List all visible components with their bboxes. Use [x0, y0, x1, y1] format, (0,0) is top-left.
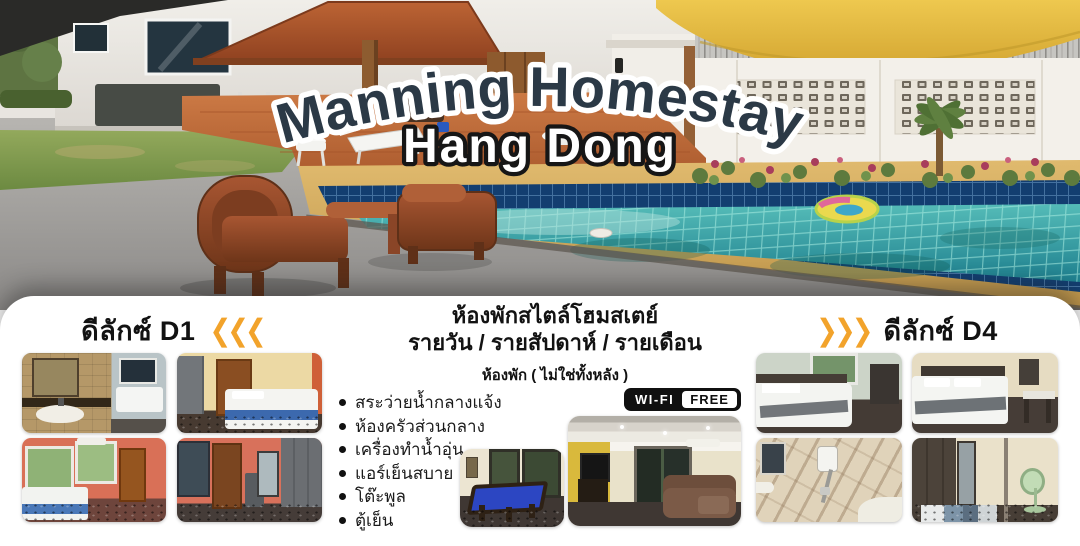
shower-hose — [821, 469, 833, 502]
photo-d4-bedroom-1 — [756, 353, 902, 433]
free-label: FREE — [682, 391, 737, 408]
photo-d4-bedroom-2 — [912, 353, 1058, 433]
desk — [1023, 391, 1055, 398]
pillow — [762, 384, 800, 393]
wifi-free-badge: WI-FI FREE — [624, 388, 741, 411]
vanity — [1019, 359, 1039, 385]
wardrobe — [281, 438, 322, 507]
hero-photo-canvas: Manning Homestay Hang Dong — [0, 0, 1080, 310]
television — [580, 453, 610, 481]
photo-d1-bedroom-yellow — [177, 353, 322, 433]
window — [119, 358, 158, 384]
chevrons-left-icon: ❮❮❮ — [209, 313, 262, 349]
pool-float — [816, 196, 878, 222]
pillow — [924, 378, 950, 387]
amenity-item: ห้องครัวส่วนกลาง — [338, 415, 568, 439]
ceiling-light — [620, 425, 624, 429]
info-panel: ดีลักซ์ D1 ❮❮❮ ❯❯❯ ดีลักซ์ D4 ห้องพักสไต… — [0, 296, 1080, 546]
floor — [111, 419, 166, 433]
sofa-cushion — [698, 496, 729, 514]
sink — [36, 405, 84, 423]
photo-d1-room-wardrobe — [177, 438, 322, 522]
bathtub — [858, 497, 902, 522]
mirror — [257, 451, 278, 497]
headboard — [756, 374, 847, 384]
vanity — [870, 364, 899, 404]
bed — [116, 387, 164, 413]
section-d1-title: ดีลักซ์ D1 — [81, 309, 195, 352]
water-heater — [817, 446, 838, 472]
amenity-item: สระว่ายน้ำกลางแจ้ง — [338, 391, 568, 415]
desk-leg — [1046, 399, 1050, 423]
hero-photo: Manning Homestay Hang Dong — [0, 0, 1080, 310]
pool-drain-cover — [590, 229, 612, 238]
door — [212, 443, 242, 509]
wifi-label: WI-FI — [635, 392, 674, 407]
shower-head — [820, 487, 830, 495]
door — [119, 448, 146, 502]
mirror — [957, 441, 976, 505]
section-d1-header: ดีลักซ์ D1 ❮❮❮ — [12, 309, 332, 352]
mirror — [32, 358, 79, 397]
heading-line1: ห้องพักสไตล์โฮมสเตย์ — [330, 302, 780, 329]
section-d4-header: ❯❯❯ ดีลักซ์ D4 — [747, 309, 1067, 352]
fan-head — [1020, 468, 1045, 495]
wardrobe — [912, 438, 956, 509]
sink — [756, 482, 774, 493]
photo-pool-table-room — [460, 449, 564, 527]
vent-blocks — [895, 80, 1035, 134]
window — [177, 441, 210, 497]
desk-leg — [1024, 399, 1028, 423]
subheading: ห้องพัก ( ไม่ใช่ทั้งหลัง ) — [330, 363, 780, 387]
photo-living-room — [568, 416, 741, 526]
air-conditioner — [686, 439, 721, 447]
floor — [460, 508, 564, 527]
sub-title: Hang Dong — [403, 120, 677, 173]
window — [760, 442, 786, 475]
center-heading: ห้องพักสไตล์โฮมสเตย์ รายวัน / รายสัปดาห์… — [330, 302, 780, 387]
faucet — [58, 398, 64, 406]
photo-d4-room-fan — [912, 438, 1058, 522]
floor — [177, 502, 322, 522]
floor — [177, 414, 322, 433]
chevrons-right-icon: ❯❯❯ — [816, 313, 869, 349]
wall-picture — [466, 457, 477, 478]
photo-d1-bathroom — [22, 353, 166, 433]
window — [25, 446, 74, 492]
wardrobe — [177, 356, 204, 414]
wicker-chair-seat — [222, 216, 348, 262]
pillow — [954, 378, 980, 387]
air-conditioner — [77, 438, 106, 445]
section-d4-title: ดีลักซ์ D4 — [884, 309, 998, 352]
floor — [22, 502, 166, 522]
window — [75, 441, 117, 484]
photo-d4-bathroom — [756, 438, 902, 522]
heading-line2: รายวัน / รายสัปดาห์ / รายเดือน — [330, 329, 780, 356]
tv-cabinet — [578, 479, 607, 504]
floor — [912, 502, 1058, 522]
photo-d1-bedroom-coral — [22, 438, 166, 522]
pillow — [232, 391, 264, 400]
